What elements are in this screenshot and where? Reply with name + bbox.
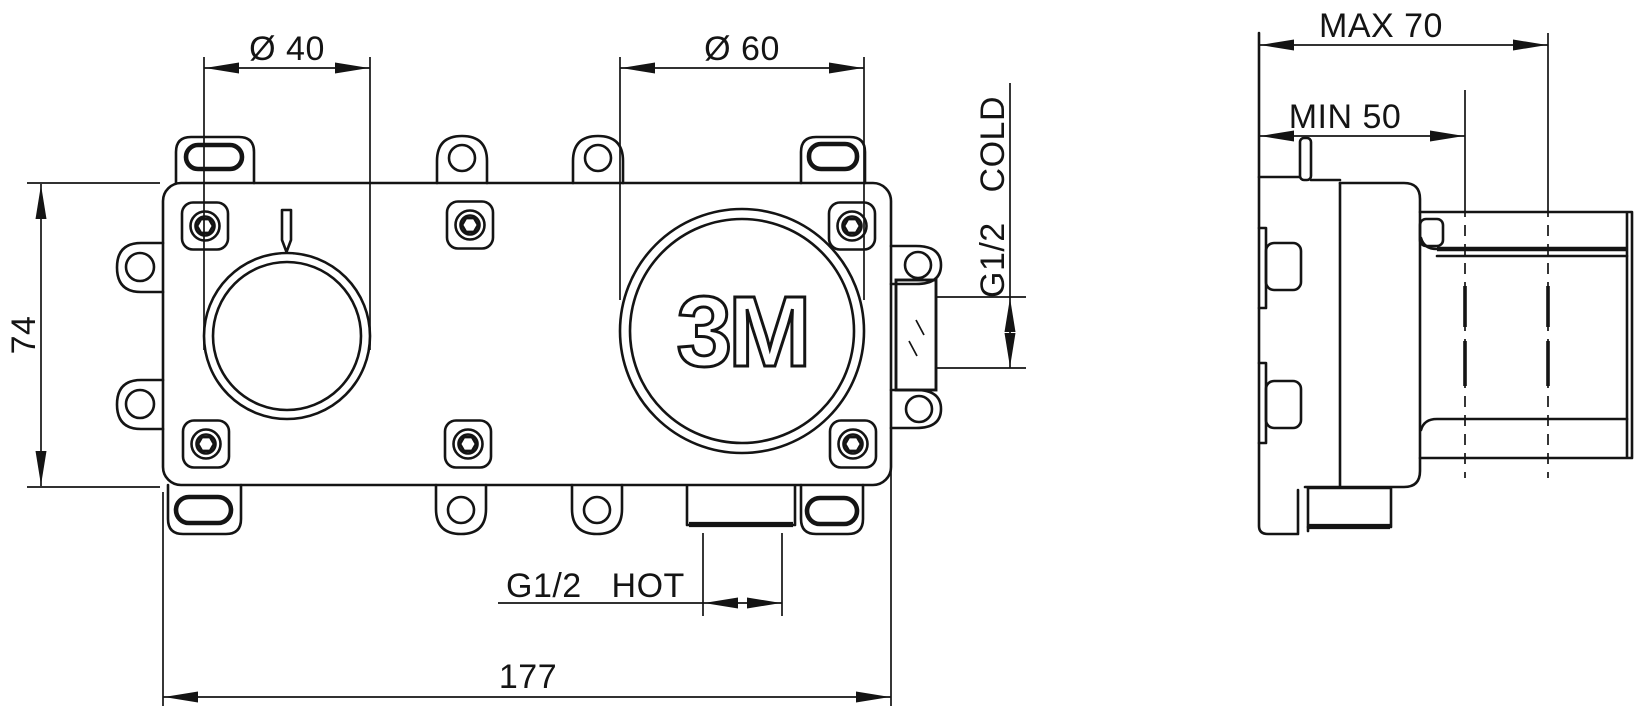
hex-socket-icon (460, 437, 476, 451)
logo-3m: 3M (677, 276, 808, 388)
thread-tick-marks (909, 320, 924, 356)
hex-socket-icon (845, 437, 861, 451)
cold-port (891, 246, 941, 428)
dim-label-min: MIN 50 (1289, 98, 1402, 136)
dim-d40: Ø 40 (204, 30, 370, 350)
screw-boss (829, 203, 875, 250)
lug-hole (448, 497, 474, 523)
screw-boss (183, 421, 229, 468)
screw-boss-side (1266, 381, 1301, 428)
hex-socket-icon (198, 437, 214, 451)
screw-boss (182, 203, 228, 250)
side-view: MAX 70 MIN 50 (1259, 7, 1632, 534)
front-view: 3M Ø 40 Ø 60 74 177 (5, 30, 1026, 706)
port-label-cold: G1/2 COLD (974, 96, 1012, 298)
lug-hole (905, 252, 931, 278)
index-notch (282, 210, 291, 252)
dim-height-74: 74 (5, 183, 160, 487)
screw-boss (830, 421, 876, 468)
top-mounting-lugs (176, 136, 865, 183)
lug-hole (585, 145, 611, 171)
dim-label-d40: Ø 40 (249, 30, 325, 68)
screw-boss (447, 202, 493, 249)
dim-label-height: 74 (5, 316, 43, 355)
dim-label-d60: Ø 60 (704, 30, 780, 68)
lug-hole (584, 497, 610, 523)
lug-hole (449, 145, 475, 171)
hex-socket-icon (462, 218, 478, 232)
cartridge-opening-d60: 3M (620, 209, 864, 453)
hex-socket-icon (197, 219, 213, 233)
side-body-block (1305, 183, 1420, 527)
side-trim-collar (1420, 212, 1632, 458)
port-label-hot: G1/2 HOT (506, 567, 685, 605)
dim-label-max: MAX 70 (1319, 7, 1443, 45)
drawing-canvas: 3M Ø 40 Ø 60 74 177 (0, 0, 1650, 728)
hot-port (687, 486, 795, 525)
oval-slot (807, 498, 857, 524)
lug-hole (126, 253, 154, 281)
cold-port-boss (896, 280, 936, 390)
oval-slot (186, 145, 242, 169)
hex-socket-icon (844, 219, 860, 233)
technical-drawing-page: 3M Ø 40 Ø 60 74 177 (0, 0, 1650, 728)
dim-label-width: 177 (499, 658, 557, 696)
dim-max-70: MAX 70 (1259, 7, 1548, 51)
oval-slot (176, 497, 231, 523)
raised-slot-boss (1300, 138, 1311, 180)
dim-hot-port: G1/2 HOT (498, 533, 782, 616)
lug-hole (906, 396, 932, 422)
dim-cold-port: G1/2 COLD (937, 83, 1026, 368)
lug-hole (126, 390, 154, 418)
left-mounting-lugs (117, 243, 163, 429)
side-hot-foot (1308, 488, 1391, 527)
dim-min-50: MIN 50 (1259, 98, 1465, 142)
screw-boss-side (1266, 243, 1301, 290)
oval-slot (809, 144, 857, 169)
screw-boss (445, 421, 491, 468)
hot-port-boss (687, 486, 795, 525)
